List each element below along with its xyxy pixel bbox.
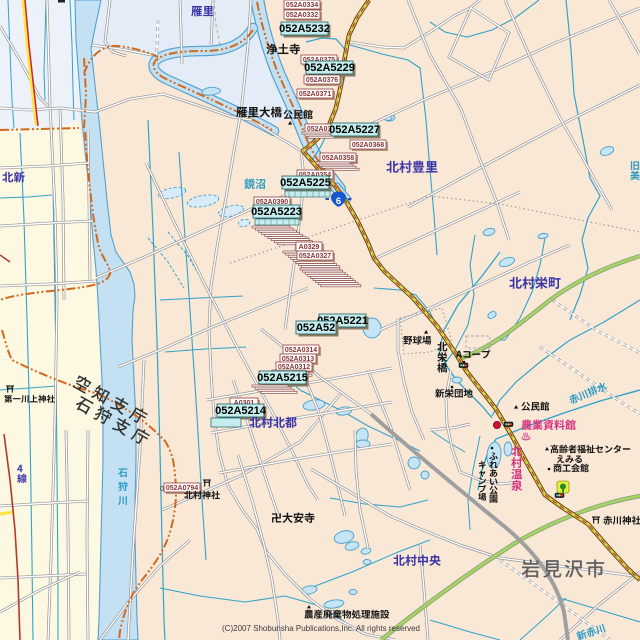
svg-text:052A0371: 052A0371 (299, 91, 331, 98)
svg-text:052A5223: 052A5223 (251, 206, 302, 218)
svg-text:052A52: 052A52 (297, 322, 336, 334)
svg-text:052A5227: 052A5227 (329, 124, 380, 136)
svg-text:052A0376: 052A0376 (306, 77, 338, 84)
svg-text:052A0794: 052A0794 (166, 485, 198, 492)
svg-text:052A0327: 052A0327 (299, 253, 331, 260)
svg-text:052A0332: 052A0332 (286, 12, 318, 19)
svg-text:052A5214: 052A5214 (215, 405, 267, 417)
svg-text:0: 0 (160, 486, 164, 493)
svg-text:052A0314: 052A0314 (285, 347, 317, 354)
svg-text:6: 6 (336, 196, 341, 207)
svg-text:(C)2007 Shobunsha Publications: (C)2007 Shobunsha Publications,Inc. All … (222, 624, 420, 633)
svg-text:052A5225: 052A5225 (280, 177, 331, 189)
svg-text:052A5232: 052A5232 (279, 23, 330, 35)
svg-text:052A0334: 052A0334 (286, 2, 318, 9)
svg-text:052A0368: 052A0368 (352, 142, 384, 149)
svg-text:052A5229: 052A5229 (304, 62, 355, 74)
svg-text:052A5215: 052A5215 (257, 372, 308, 384)
svg-text:A0329: A0329 (299, 244, 320, 251)
svg-text:052A0358: 052A0358 (322, 155, 354, 162)
